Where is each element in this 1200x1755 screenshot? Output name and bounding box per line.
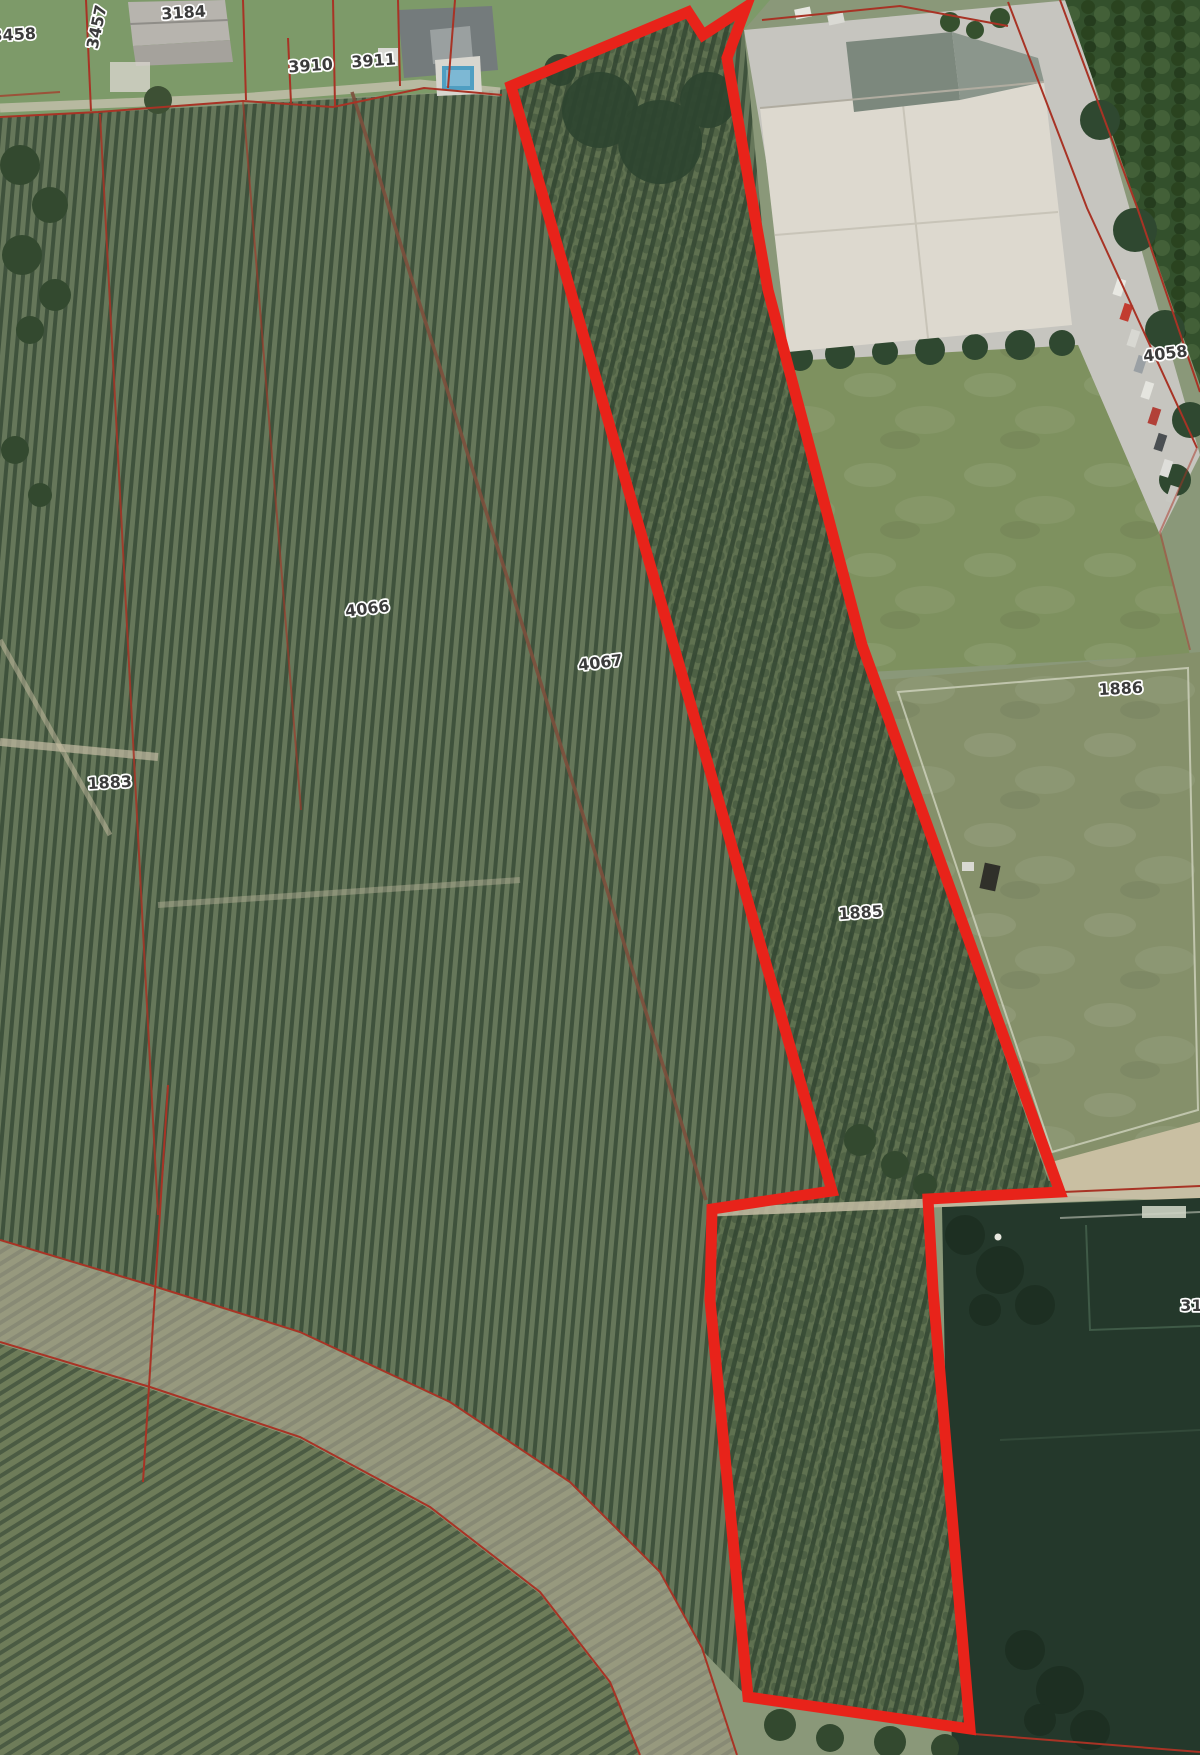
field-shed [962,862,974,871]
parcel-label-1886[interactable]: 1886 [1098,678,1143,699]
parcel-label-3458[interactable]: 3458 [0,24,36,45]
map-viewport[interactable]: 3458 3457 3184 3910 3911 4058 4066 4067 … [0,0,1200,1755]
aerial-map: 3458 3457 3184 3910 3911 4058 4066 4067 … [0,0,1200,1755]
parcel-label-3910[interactable]: 3910 [288,54,334,76]
parcel-label-311[interactable]: 311 [1180,1296,1200,1315]
parcel-label-1885[interactable]: 1885 [838,901,884,923]
parcel-label-3911[interactable]: 3911 [351,49,397,71]
parcel-label-3184[interactable]: 3184 [161,1,207,23]
parcel-label-1883[interactable]: 1883 [87,772,132,793]
